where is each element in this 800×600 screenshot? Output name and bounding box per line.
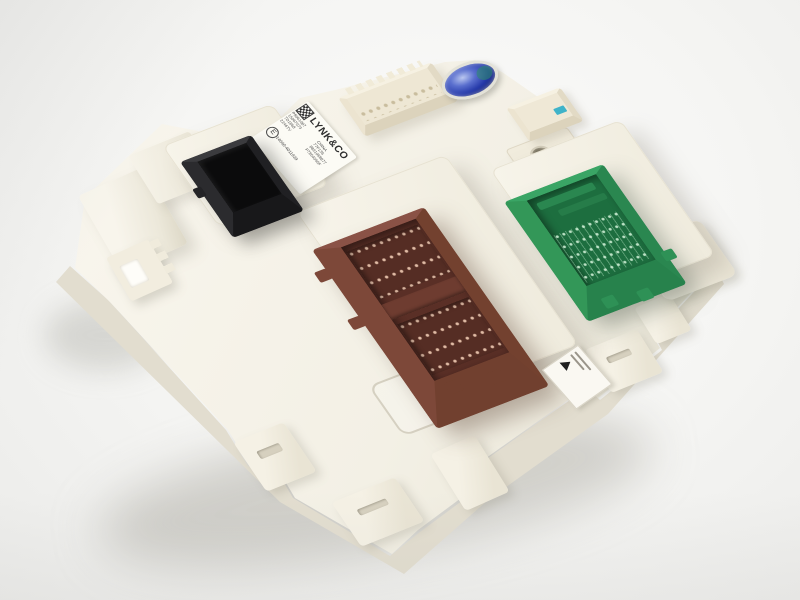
seal-green-tint: [475, 64, 495, 82]
photo-stage: LYNK&CO P8061087 15067073 7D1868 2246TV …: [0, 0, 800, 600]
brown-latch: [444, 379, 465, 395]
brown-latch: [486, 369, 507, 385]
arrow-icon: [559, 358, 574, 372]
tab-slot: [256, 443, 283, 459]
tab-slot: [606, 348, 633, 363]
connector-teeth: [345, 60, 424, 95]
green-latch: [600, 294, 619, 309]
teal-key-insert: [553, 105, 567, 115]
clip-notch: [119, 258, 150, 288]
green-pin-field: [554, 210, 652, 282]
tab-slot: [356, 498, 389, 516]
